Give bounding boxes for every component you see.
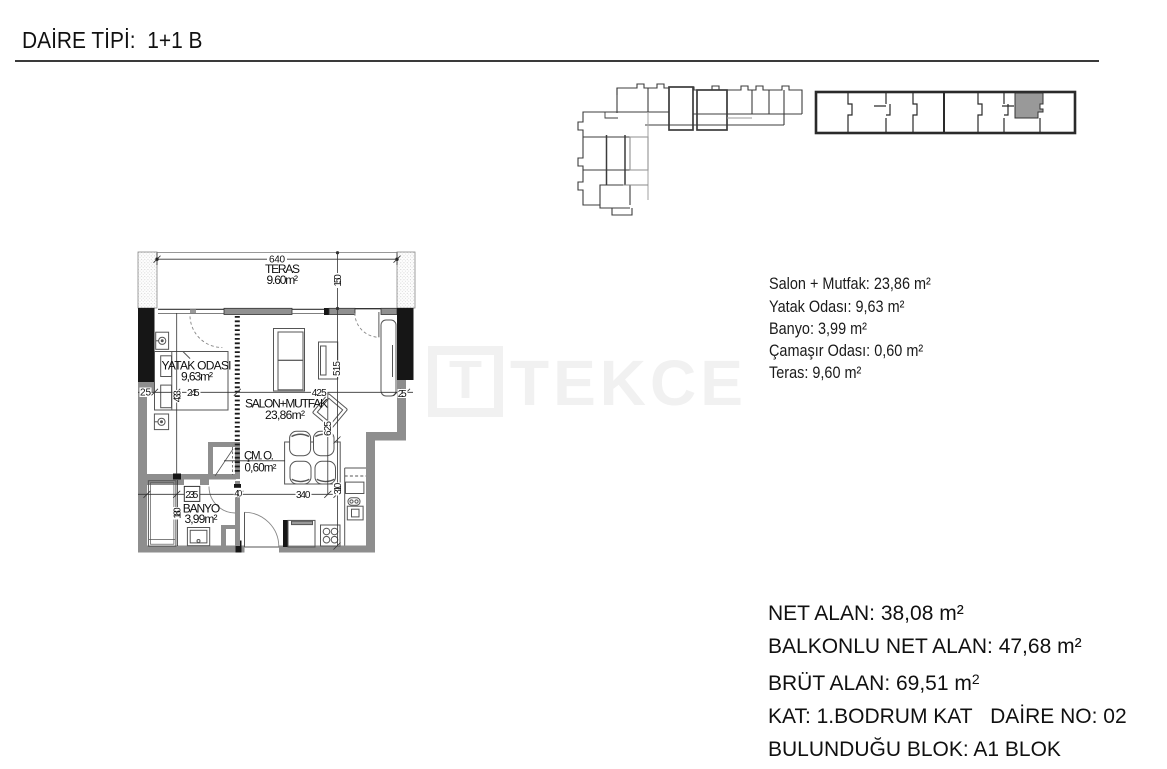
svg-text:235: 235 xyxy=(185,490,198,501)
svg-text:310: 310 xyxy=(333,482,344,494)
svg-text:40: 40 xyxy=(234,488,242,498)
svg-text:9,63m²: 9,63m² xyxy=(181,370,213,384)
svg-text:25: 25 xyxy=(140,388,151,399)
svg-text:9.60m²: 9.60m² xyxy=(267,273,299,287)
svg-text:245: 245 xyxy=(187,388,200,399)
svg-text:515: 515 xyxy=(332,361,343,376)
svg-text:23,86m²: 23,86m² xyxy=(265,408,305,422)
svg-text:150: 150 xyxy=(333,274,344,287)
svg-text:625: 625 xyxy=(323,421,334,436)
svg-text:340: 340 xyxy=(296,490,311,501)
svg-text:25: 25 xyxy=(398,389,407,400)
svg-text:0,60m²: 0,60m² xyxy=(245,463,277,475)
svg-text:433: 433 xyxy=(173,390,184,402)
svg-text:3,99m²: 3,99m² xyxy=(185,512,218,526)
svg-text:ÇM. O.: ÇM. O. xyxy=(244,450,274,462)
